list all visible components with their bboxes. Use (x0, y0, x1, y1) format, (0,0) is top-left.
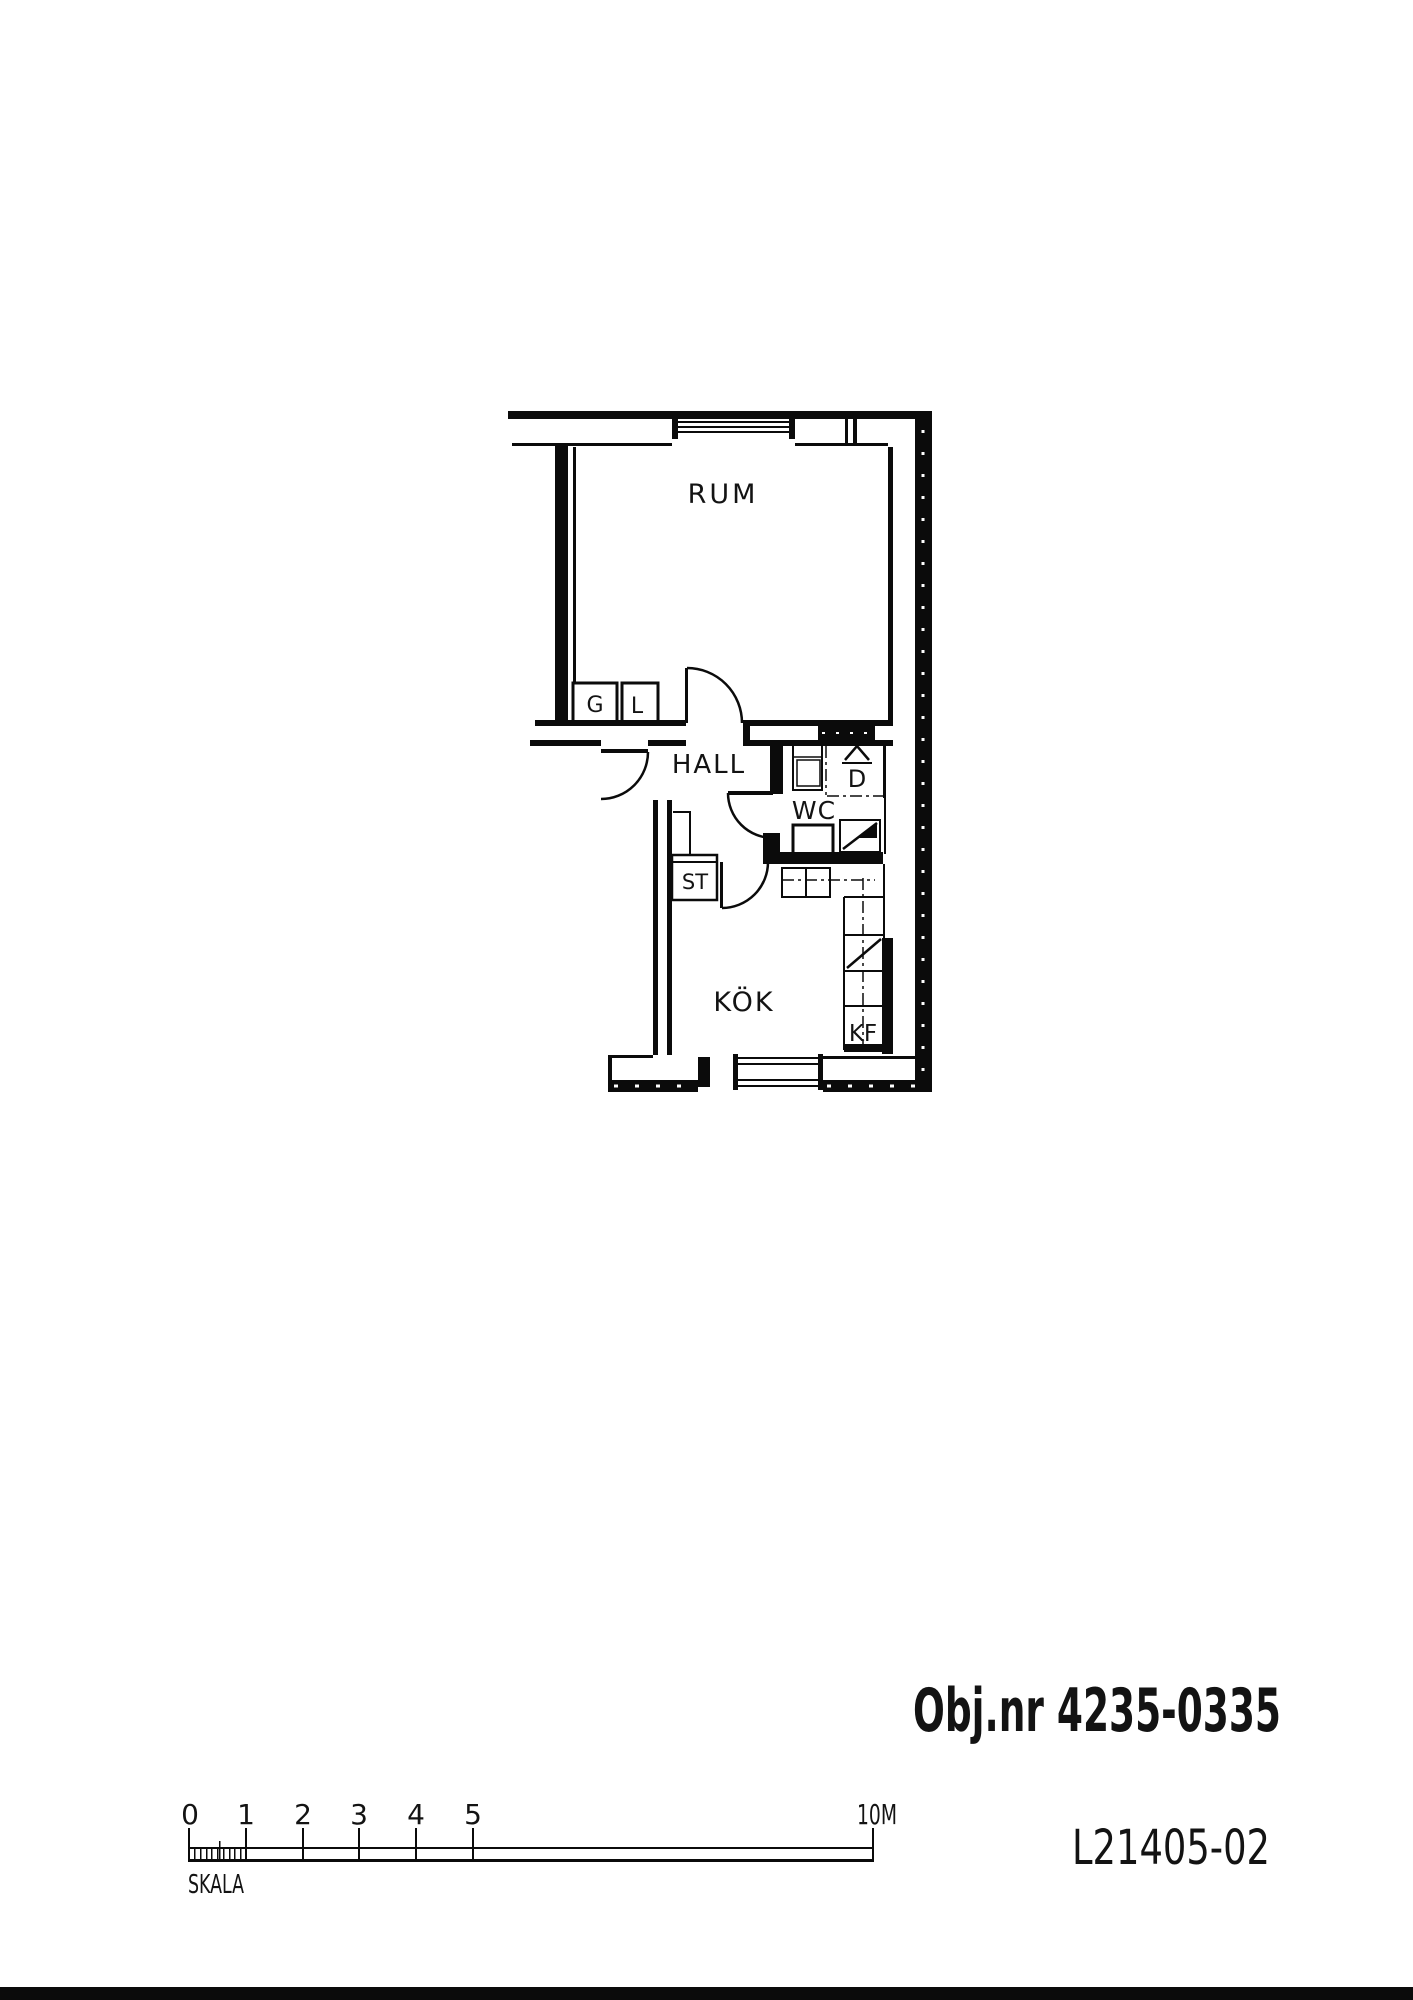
wc-sink (793, 745, 822, 790)
room-label-rum: RUM (688, 479, 759, 510)
room-label-hall: HALL (672, 750, 746, 780)
scan-border (0, 1987, 1413, 2000)
closet-label-kf: KF (849, 1021, 877, 1047)
kitchen-walls (653, 800, 672, 1055)
entry-door (601, 749, 648, 799)
kitchen-window (733, 1054, 823, 1090)
object-number: Obj.nr 4235-0335 (913, 1676, 1281, 1746)
scale-end-label: 10M (857, 1798, 897, 1831)
scale-tick-4: 4 (407, 1798, 425, 1831)
room-label-wc: WC (792, 796, 836, 825)
scale-tick-3: 3 (350, 1798, 368, 1831)
closet-label-g: G (586, 693, 603, 718)
scale-bar (188, 1828, 874, 1862)
closet-label-l: L (631, 694, 644, 719)
scale-tick-5: 5 (464, 1798, 482, 1831)
closet-label-d: D (848, 765, 866, 793)
scanned-floor-plan-page: RUM HALL WC KÖK G L ST D KF Obj.nr 4235-… (0, 0, 1413, 2000)
scale-tick-2: 2 (294, 1798, 312, 1831)
shower-door-symbol (842, 746, 872, 763)
closet-label-st: ST (682, 870, 708, 894)
rum-door (685, 668, 742, 723)
wc-door (728, 791, 773, 838)
kitchen-sink-counter (782, 868, 875, 897)
kitchen-door (720, 862, 768, 908)
rum-window (672, 417, 795, 439)
scale-tick-1: 1 (237, 1798, 255, 1831)
scale-caption: SKALA (188, 1870, 244, 1900)
floor-plan-drawing: RUM HALL WC KÖK G L ST D KF Obj.nr 4235-… (0, 0, 1413, 2000)
wc-toilet (793, 825, 833, 854)
drawing-number: L21405-02 (1072, 1820, 1270, 1876)
room-label-kok: KÖK (713, 986, 774, 1018)
ventilation-shaft-symbol (840, 820, 880, 852)
scale-tick-0: 0 (181, 1798, 199, 1831)
